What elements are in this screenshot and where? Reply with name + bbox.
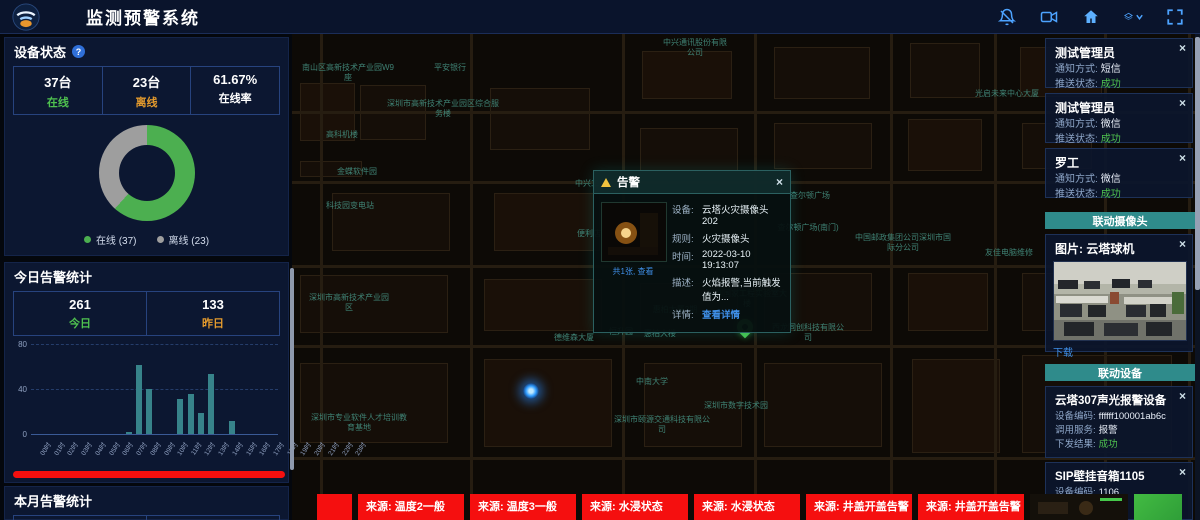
popup-field-row: 规则: 火灾摄像头 [672, 231, 783, 245]
card-field-row: 设备编码:ffffff100001ab6c [1046, 409, 1192, 423]
stat-label: 昨日 [147, 315, 279, 331]
linked-camera-card: × 图片: 云塔球机 下载 [1045, 234, 1193, 352]
map-label: 深圳市高新技术产业园区 [306, 293, 392, 313]
stat-value: 261 [14, 297, 146, 312]
app-logo-icon [12, 3, 40, 31]
map-label: 深圳市专业软件人才培训教育基地 [308, 413, 410, 433]
card-field-row: 通知方式:微信 [1046, 117, 1192, 132]
stat-label: 在线率 [191, 90, 279, 106]
y-axis-tick: 80 [11, 340, 27, 349]
stat-label: 今日 [14, 315, 146, 331]
field-value: 云塔火灾摄像头202 [702, 202, 783, 227]
donut-legend-item: 在线 (37) [84, 232, 137, 247]
field-value: 微信 [1101, 119, 1121, 130]
download-link[interactable]: 下载 [1053, 348, 1073, 359]
map-label: 中兴通讯股份有限公司 [660, 38, 730, 58]
help-icon[interactable]: ? [72, 45, 85, 58]
right-scrollbar-track[interactable] [1195, 33, 1200, 520]
bar-10时 [136, 365, 142, 434]
field-value: 成功 [1101, 134, 1121, 145]
field-value: 报警 [1099, 425, 1118, 436]
card-field-row: 推送状态:成功 [1046, 187, 1192, 202]
close-icon[interactable]: × [1179, 42, 1186, 54]
device-status-title: 设备状态 [14, 42, 66, 61]
bar-15时 [188, 394, 194, 435]
field-value: 成功 [1099, 439, 1118, 450]
notification-card: × 测试管理员 通知方式:微信 推送状态:成功 [1045, 93, 1193, 143]
ticker-snapshot-image[interactable] [1030, 494, 1128, 520]
stat-cell: 61.67% 在线率 [190, 67, 279, 114]
donut-legend-item: 离线 (23) [157, 232, 210, 247]
field-value: 2022-03-10 19:13:07 [702, 249, 783, 271]
bar-16时 [198, 413, 204, 434]
map-label: 金蝶软件园 [322, 167, 392, 177]
stat-value: 23台 [103, 72, 191, 91]
field-value: ffffff100001ab6c [1099, 411, 1166, 422]
field-value: 火焰报警,当前触发值为... [702, 275, 783, 303]
ticker-alert-block[interactable] [317, 494, 352, 520]
notification-card: × 罗工 通知方式:微信 推送状态:成功 [1045, 148, 1193, 198]
map-label: 高科机楼 [312, 130, 372, 140]
field-label: 下发结果: [1055, 439, 1096, 450]
card-field-row: 通知方式:微信 [1046, 172, 1192, 187]
device-status-donut-chart [99, 125, 195, 221]
field-label: 推送状态: [1055, 189, 1098, 200]
ticker-alert-item[interactable]: 来源: 水浸状态 [694, 494, 800, 520]
map-label: 深圳市数字技术园 [688, 401, 784, 411]
alert-popup: 告警 × 共1张, 查看 设备: 云塔火灾摄像头202 规则: 火灾摄 [593, 170, 791, 333]
close-icon[interactable]: × [1179, 390, 1186, 402]
month-alarm-panel: 本月告警统计 763 1146 [4, 486, 289, 520]
close-icon[interactable]: × [1179, 97, 1186, 109]
chevron-down-icon [1135, 8, 1144, 26]
header-toolbar [998, 0, 1186, 33]
card-title: 云塔307声光报警设备 [1046, 387, 1192, 409]
card-title: 测试管理员 [1046, 39, 1192, 62]
card-field-row: 推送状态:成功 [1046, 77, 1192, 92]
field-label: 调用服务: [1055, 425, 1096, 436]
y-axis-tick: 40 [11, 385, 27, 394]
map-label: 南山区高新技术产业园W9座 [302, 63, 394, 83]
home-icon[interactable] [1082, 7, 1102, 27]
field-label: 推送状态: [1055, 134, 1098, 145]
stat-cell: 261 今日 [14, 292, 146, 335]
stat-cell: 23台 离线 [102, 67, 191, 114]
popup-field-row: 时间: 2022-03-10 19:13:07 [672, 249, 783, 271]
field-label: 描述: [672, 275, 702, 303]
layers-icon[interactable] [1124, 7, 1144, 27]
bar-19时 [229, 421, 235, 435]
stat-label: 离线 [103, 94, 191, 110]
unprocessed-progress-bar [13, 471, 285, 478]
header: 监测预警系统 [0, 0, 1200, 34]
app: 监测预警系统 南山区高新技术产业园W9座平安银行中兴通讯股份有限公司光启未来中心… [0, 0, 1200, 520]
view-details-link[interactable]: 查看详情 [702, 307, 740, 321]
card-field-row: 调用服务:报警 [1046, 423, 1192, 437]
field-value: 成功 [1101, 79, 1121, 90]
field-value: 微信 [1101, 174, 1121, 185]
map-label: 中南大学 [622, 377, 682, 387]
field-label: 时间: [672, 249, 702, 271]
field-value: 短信 [1101, 64, 1121, 75]
page-title: 监测预警系统 [86, 4, 200, 29]
left-scrollbar-thumb[interactable] [290, 268, 294, 470]
bell-muted-icon[interactable] [998, 7, 1018, 27]
ticker-alert-item[interactable]: 来源: 水浸状态 [582, 494, 688, 520]
popup-field-row: 设备: 云塔火灾摄像头202 [672, 202, 783, 227]
device-location-marker[interactable] [523, 383, 539, 399]
warning-icon [601, 178, 611, 187]
stat-value: 37台 [14, 72, 102, 91]
field-label: 设备编码: [1055, 411, 1096, 422]
ticker-alert-item[interactable]: 来源: 温度2一般 [358, 494, 464, 520]
close-icon[interactable]: × [1179, 466, 1186, 478]
stat-cell: 763 [14, 516, 146, 520]
alert-popup-header: 告警 × [594, 171, 790, 194]
field-label: 通知方式: [1055, 64, 1098, 75]
linked-device-card: × 云塔307声光报警设备 设备编码:ffffff100001ab6c 调用服务… [1045, 386, 1193, 458]
card-field-row: 下发结果:成功 [1046, 437, 1192, 451]
stat-cell: 133 昨日 [146, 292, 279, 335]
field-label: 通知方式: [1055, 119, 1098, 130]
map-label: 德维森大厦 [538, 333, 610, 343]
stat-value: 133 [147, 297, 279, 312]
stat-cell: 37台 在线 [14, 67, 102, 114]
video-camera-icon[interactable] [1040, 7, 1060, 27]
card-title: 测试管理员 [1046, 94, 1192, 117]
card-field-row: 通知方式:短信 [1046, 62, 1192, 77]
y-axis-tick: 0 [11, 430, 27, 439]
field-label: 详情: [672, 307, 702, 321]
card-title: 罗工 [1046, 149, 1192, 172]
ticker-snapshot-green-image[interactable] [1134, 494, 1182, 520]
stat-value: 61.67% [191, 72, 279, 87]
map-label: 科技园变电站 [310, 201, 390, 211]
stat-label: 在线 [14, 94, 102, 110]
card-title: SIP壁挂音箱1105 [1046, 463, 1192, 485]
map-label: 中国邮政集团公司深圳市国际分公司 [855, 233, 951, 253]
linked-cameras-header[interactable]: 联动摄像头 [1045, 212, 1195, 229]
map-label: 深圳市高新技术产业园区综合服务楼 [384, 99, 502, 119]
alert-thumbnail-image[interactable] [601, 202, 667, 262]
today-alarm-bar-chart: 80400 [31, 344, 278, 434]
bar-17时 [208, 374, 214, 434]
map-label: 友佳电脑维修 [978, 248, 1040, 258]
field-label: 通知方式: [1055, 174, 1098, 185]
field-label: 推送状态: [1055, 79, 1098, 90]
today-alarm-panel: 今日告警统计 261 今日 133 昨日 80400 00时01时02时03时0… [4, 262, 289, 483]
fullscreen-icon[interactable] [1166, 7, 1186, 27]
alert-ticker: 来源: 温度2一般来源: 温度3一般来源: 水浸状态来源: 水浸状态来源: 井盖… [317, 494, 1182, 520]
field-label: 设备: [672, 202, 702, 227]
camera-snapshot-image[interactable] [1053, 261, 1187, 341]
right-panel: × 测试管理员 通知方式:短信 推送状态:成功 × 测试管理员 通知方式:微信 … [1045, 33, 1195, 520]
stat-cell: 1146 [146, 516, 279, 520]
ticker-alert-item[interactable]: 来源: 井盖开盖告警 [918, 494, 1024, 520]
close-icon[interactable]: × [1179, 238, 1186, 250]
map-label: 平安银行 [420, 63, 480, 73]
month-alarm-title: 本月告警统计 [14, 491, 92, 510]
field-value: 成功 [1101, 189, 1121, 200]
right-scrollbar-thumb[interactable] [1195, 37, 1200, 290]
ticker-alert-item[interactable]: 来源: 温度3一般 [470, 494, 576, 520]
bar-11时 [146, 389, 152, 434]
ticker-alert-item[interactable]: 来源: 井盖开盖告警 [806, 494, 912, 520]
bar-14时 [177, 399, 183, 434]
map-label: 深圳市颐源交通科技有限公司 [614, 415, 710, 435]
alert-popup-title: 告警 [617, 174, 776, 190]
card-field-row: 推送状态:成功 [1046, 132, 1192, 147]
thumbnail-caption-link[interactable]: 共1张, 查看 [601, 266, 665, 277]
field-value: 火灾摄像头 [702, 231, 750, 245]
linked-devices-header[interactable]: 联动设备 [1045, 364, 1195, 381]
field-label: 规则: [672, 231, 702, 245]
device-status-panel: 设备状态 ? 37台 在线 23台 离线 61.67% 在线率 在线 (37)离… [4, 37, 289, 256]
popup-field-row: 详情: 查看详情 [672, 307, 783, 321]
bar-09时 [126, 432, 132, 434]
close-icon[interactable]: × [776, 176, 783, 188]
notification-card: × 测试管理员 通知方式:短信 推送状态:成功 [1045, 38, 1193, 88]
today-alarm-title: 今日告警统计 [14, 267, 92, 286]
close-icon[interactable]: × [1179, 152, 1186, 164]
camera-card-title: 图片: 云塔球机 [1046, 235, 1192, 258]
popup-field-row: 描述: 火焰报警,当前触发值为... [672, 275, 783, 303]
